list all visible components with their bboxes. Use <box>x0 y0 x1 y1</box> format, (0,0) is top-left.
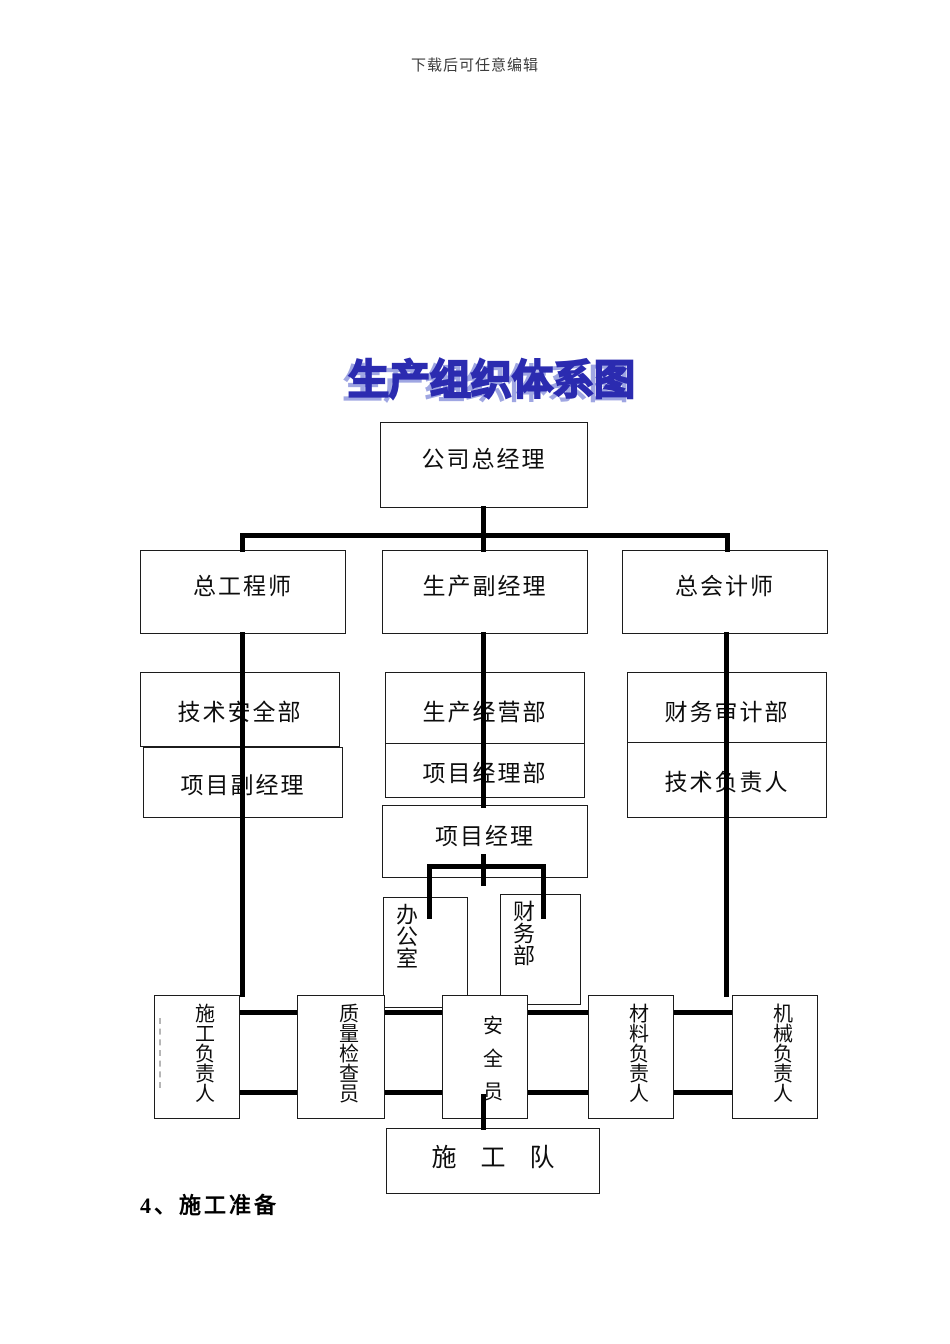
node-construction-team: 施工队 <box>386 1128 600 1194</box>
connector-railtop-seg3 <box>528 1010 588 1015</box>
node-label: 总工程师 <box>193 567 293 601</box>
node-machinery-lead: 机械负责人 <box>732 995 818 1119</box>
node-chief-engineer: 总工程师 <box>140 550 346 634</box>
connector-drop-right <box>725 533 730 552</box>
connector-railbottom-seg4 <box>674 1090 732 1095</box>
node-production-deputy-manager: 生产副经理 <box>382 550 588 634</box>
node-materials-lead: 材料负责人 <box>588 995 674 1119</box>
connector-bracket-drop-office <box>427 864 432 919</box>
connector-railtop-seg4 <box>674 1010 732 1015</box>
connector-root-stub <box>481 506 486 536</box>
document-page: 下载后可任意编辑 生产组织体系图 公司总经理 总工程师 生产副经理 总会计师 技… <box>0 0 950 1344</box>
connector-bracket-horizontal <box>427 864 546 869</box>
connector-pm-stub <box>481 854 486 886</box>
node-label: 机械负责人 <box>767 1003 796 1103</box>
connector-railtop-seg1 <box>240 1010 297 1015</box>
node-label: 生产副经理 <box>423 567 548 601</box>
node-construction-lead: 施工负责人 <box>154 995 240 1119</box>
node-label: 办公室 <box>389 903 421 969</box>
node-label: 施工负责人 <box>189 1003 218 1103</box>
connector-column-middle <box>481 632 486 808</box>
section-heading: 4、施工准备 <box>140 1188 279 1220</box>
stray-marks <box>159 1018 161 1088</box>
node-label: 质量检查员 <box>333 1003 362 1103</box>
diagram-title: 生产组织体系图 <box>348 358 648 403</box>
node-office: 办公室 <box>383 897 468 1008</box>
connector-safety-team-stub <box>481 1094 486 1130</box>
connector-railtop-seg2 <box>385 1010 442 1015</box>
node-company-general-manager: 公司总经理 <box>380 422 588 508</box>
node-label: 财务部 <box>506 900 538 966</box>
node-label: 总会计师 <box>675 567 775 601</box>
watermark-text: 下载后可任意编辑 <box>0 54 950 75</box>
node-label: 材料负责人 <box>623 1003 652 1103</box>
connector-railbottom-seg3 <box>528 1090 588 1095</box>
connector-drop-left <box>240 533 245 552</box>
connector-bracket-drop-finance <box>541 864 546 919</box>
node-label: 公司总经理 <box>422 440 547 474</box>
node-quality-inspector: 质量检查员 <box>297 995 385 1119</box>
connector-drop-middle <box>481 533 486 552</box>
connector-column-left <box>240 632 245 997</box>
connector-railbottom-seg2 <box>385 1090 442 1095</box>
connector-column-right <box>724 632 729 997</box>
node-label: 项目经理 <box>435 817 535 851</box>
node-label: 施工队 <box>431 1138 578 1174</box>
connector-railbottom-seg1 <box>240 1090 297 1095</box>
node-chief-accountant: 总会计师 <box>622 550 828 634</box>
